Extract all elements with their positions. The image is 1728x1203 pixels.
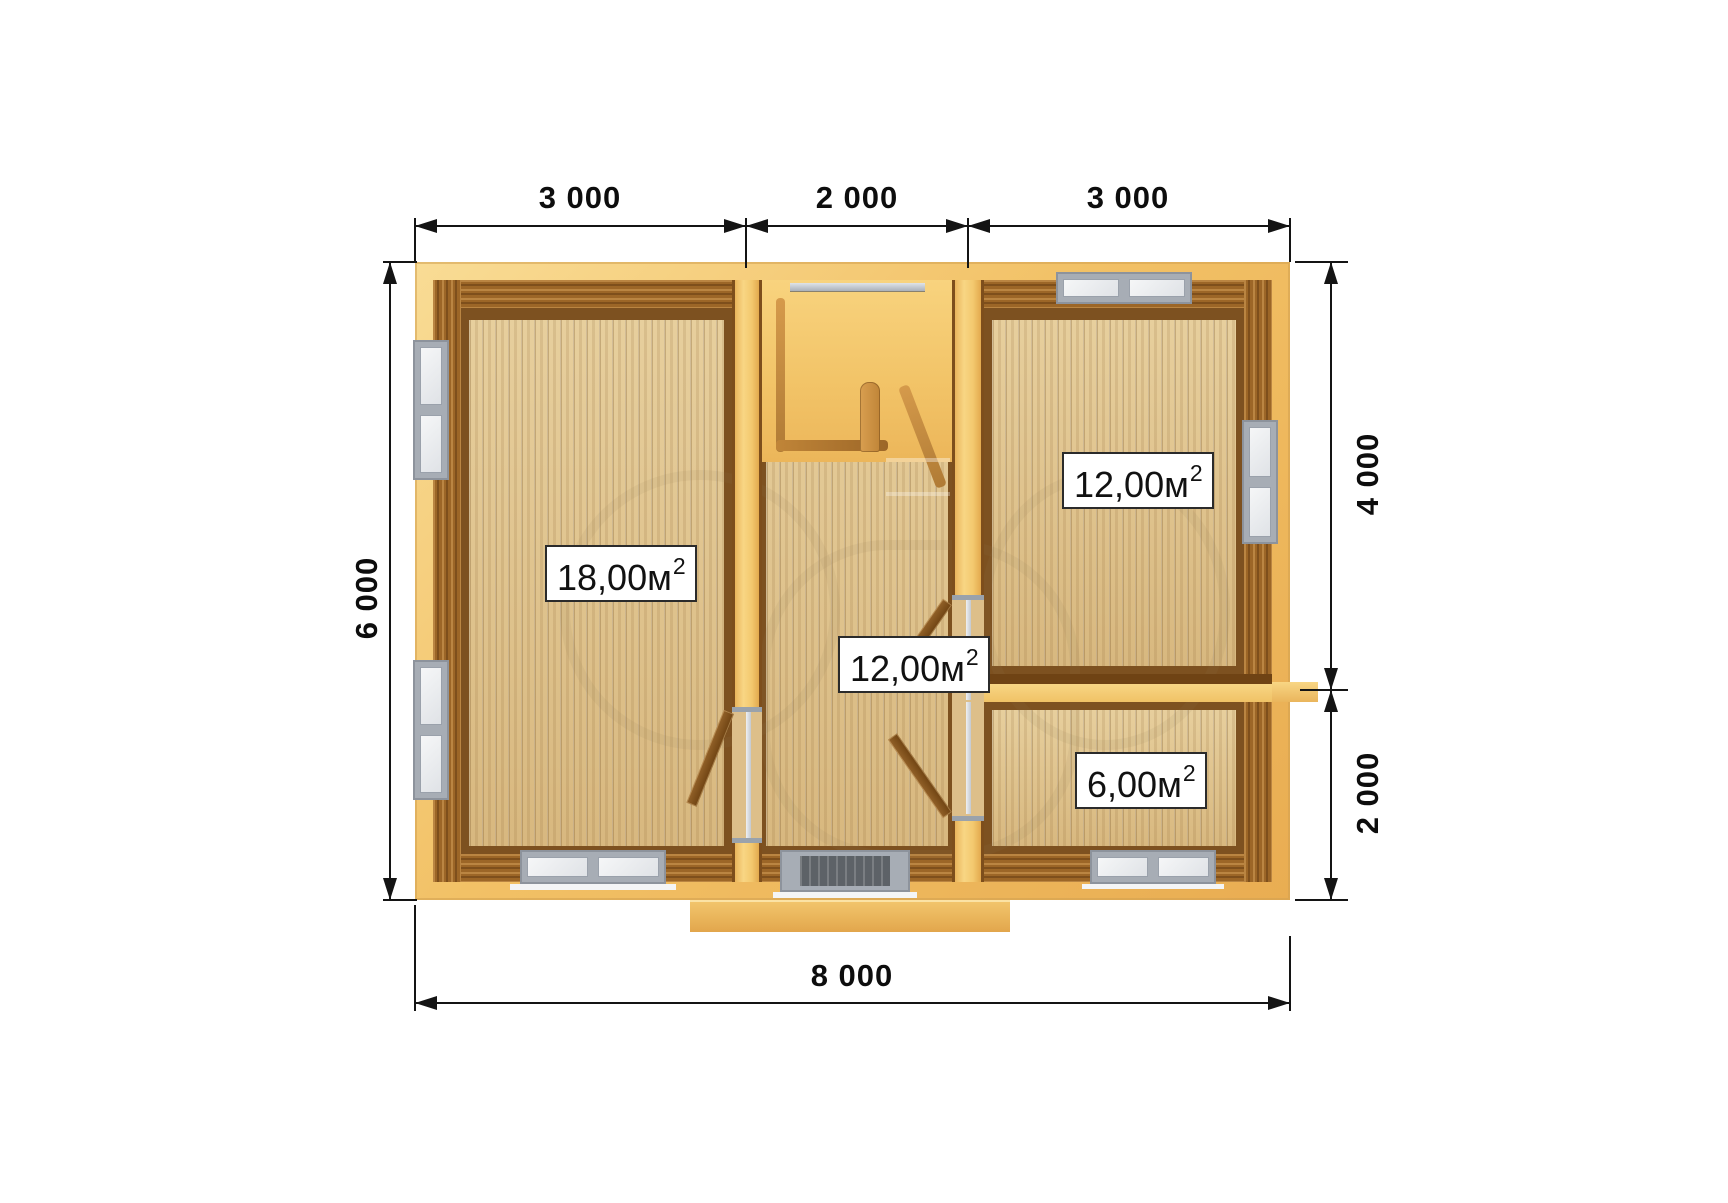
door-jamb (952, 816, 984, 821)
dim-arrow-icon (968, 219, 990, 233)
door-jamb (732, 838, 762, 843)
stair-step-edge (886, 458, 950, 462)
watermark (980, 470, 1230, 750)
entrance-step (690, 900, 1010, 932)
dim-bottom-label: 8 000 (772, 958, 932, 994)
room-label-living: 18,00м2 (545, 545, 697, 602)
room-area-sup: 2 (966, 644, 979, 670)
dim-arrow-icon (1324, 878, 1338, 900)
dim-top-line (415, 225, 1290, 227)
room-label-bedroom: 12,00м2 (1062, 452, 1214, 509)
dim-arrow-icon (946, 219, 968, 233)
dim-top-label-1: 3 000 (500, 180, 660, 216)
door-living-frame (746, 712, 751, 838)
window-right (1242, 420, 1278, 544)
dim-arrow-icon (383, 878, 397, 900)
dim-arrow-icon (746, 219, 768, 233)
dim-arrow-icon (415, 219, 437, 233)
window-bottom-small (1090, 850, 1216, 884)
room-area-value: 6,00м (1087, 764, 1182, 805)
room-label-hallway: 12,00м2 (838, 636, 990, 693)
dim-right-label-2: 2 000 (1350, 723, 1386, 863)
dim-arrow-icon (383, 262, 397, 284)
dim-arrow-icon (724, 219, 746, 233)
window-sill (1082, 884, 1224, 889)
dim-extension (1295, 899, 1348, 901)
door-jamb (952, 595, 984, 600)
dim-right-label-1: 4 000 (1350, 404, 1386, 544)
window-left-lower (413, 660, 449, 800)
room-area-sup: 2 (1190, 460, 1203, 486)
dim-arrow-icon (1268, 996, 1290, 1010)
window-bottom-living (520, 850, 666, 884)
dim-top-label-2: 2 000 (777, 180, 937, 216)
wall-band-right (1244, 280, 1272, 882)
partition-wall (984, 674, 1272, 702)
stair-newel-post (860, 382, 880, 452)
dim-right-line (1330, 262, 1332, 900)
dim-left-label: 6 000 (349, 528, 385, 668)
dim-arrow-icon (1324, 690, 1338, 712)
dim-arrow-icon (1324, 668, 1338, 690)
room-area-value: 18,00м (557, 557, 672, 598)
entrance-threshold (773, 892, 917, 898)
room-area-value: 12,00м (1074, 464, 1189, 505)
dim-left-line (389, 262, 391, 900)
dim-arrow-icon (415, 996, 437, 1010)
terrace-top-railing (790, 283, 925, 291)
room-area-sup: 2 (673, 553, 686, 579)
floor-plan: 18,00м2 12,00м2 12,00м2 6,00м2 3 000 2 0… (0, 0, 1728, 1203)
partition-wall-end (1272, 682, 1318, 702)
dim-arrow-icon (1268, 219, 1290, 233)
terrace-rail-left (776, 298, 785, 452)
window-sill (510, 884, 676, 890)
window-top (1056, 272, 1192, 304)
window-left-upper (413, 340, 449, 480)
dim-arrow-icon (1324, 262, 1338, 284)
room-area-value: 12,00м (850, 648, 965, 689)
dim-extension (1295, 261, 1348, 263)
room-area-sup: 2 (1183, 760, 1196, 786)
room-label-small: 6,00м2 (1075, 752, 1207, 809)
stair-step-edge (886, 492, 950, 496)
entrance-door-panel (800, 856, 890, 886)
dim-top-label-3: 3 000 (1048, 180, 1208, 216)
door-small-frame (966, 702, 971, 814)
dim-bottom-line (415, 1002, 1290, 1004)
door-jamb (732, 707, 762, 712)
